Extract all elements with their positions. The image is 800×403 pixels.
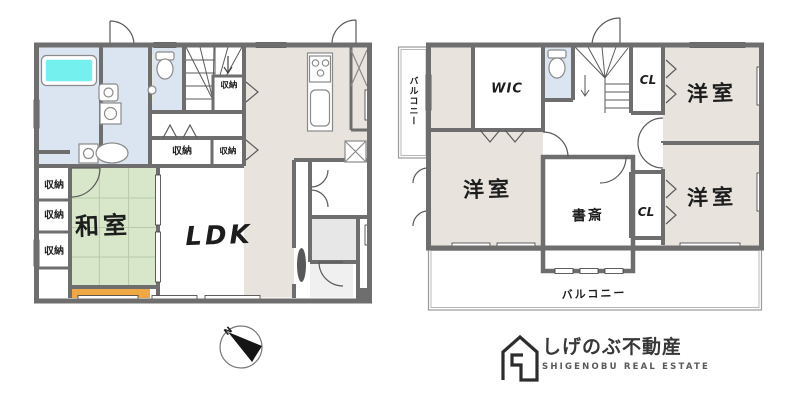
utility-sink <box>96 143 128 163</box>
label-balcony-bottom: バルコニー <box>561 287 626 300</box>
genkan <box>310 262 353 298</box>
front-door-leaf <box>297 248 306 282</box>
label-cl-top: CL <box>640 74 656 86</box>
label-storage-west-2: 収納 <box>44 211 64 222</box>
floor2-plan <box>399 18 763 310</box>
toilet-bowl-1f <box>157 59 173 79</box>
bathtub <box>45 59 94 83</box>
ldk-door-arc <box>332 20 356 45</box>
company-name-en: SHIGENOBU REAL ESTATE <box>542 362 710 372</box>
floor1-plan <box>34 20 370 301</box>
corner-basin <box>148 86 156 94</box>
washbasin-bowl <box>104 88 113 97</box>
washing-machine-drum <box>105 108 117 120</box>
company-name: しげのぶ不動産 <box>542 332 710 359</box>
toilet-bowl-2f <box>549 58 565 78</box>
kitchen-sink <box>311 90 330 126</box>
label-washitsu: 和室 <box>75 213 132 239</box>
label-storage-hall-left: 収納 <box>172 147 192 158</box>
floorplan-page: LDK 和室 収納 収納 収納 収納 収納 収納 バルコニー WIC CL 洋室… <box>0 0 800 403</box>
label-storage-west-1: 収納 <box>44 181 64 192</box>
label-bedroom-bottom-right: 洋室 <box>687 187 738 210</box>
label-storage-under-stairs: 収納 <box>220 81 237 90</box>
label-cl-bottom: CL <box>638 206 654 218</box>
laundry-drain <box>84 149 94 159</box>
company-logo: しげのぶ不動産 SHIGENOBU REAL ESTATE <box>498 332 710 372</box>
left-casement-arcs <box>413 168 428 226</box>
label-balcony-left: バルコニー <box>408 76 417 126</box>
stairs-top-door-arc <box>592 18 620 46</box>
label-bedroom-left: 洋室 <box>463 179 514 202</box>
label-storage-west-3: 収納 <box>44 247 64 258</box>
label-wic: WIC <box>491 83 523 96</box>
label-bedroom-top-right: 洋室 <box>687 83 738 106</box>
label-storage-hall-right: 収納 <box>219 147 236 156</box>
back-door-arc <box>110 21 134 45</box>
label-study: 書斎 <box>572 208 604 223</box>
toilet-tank-2f <box>548 50 566 58</box>
label-ldk: LDK <box>185 222 253 250</box>
entry-hall <box>310 217 358 262</box>
fixtures-2f <box>548 50 566 78</box>
